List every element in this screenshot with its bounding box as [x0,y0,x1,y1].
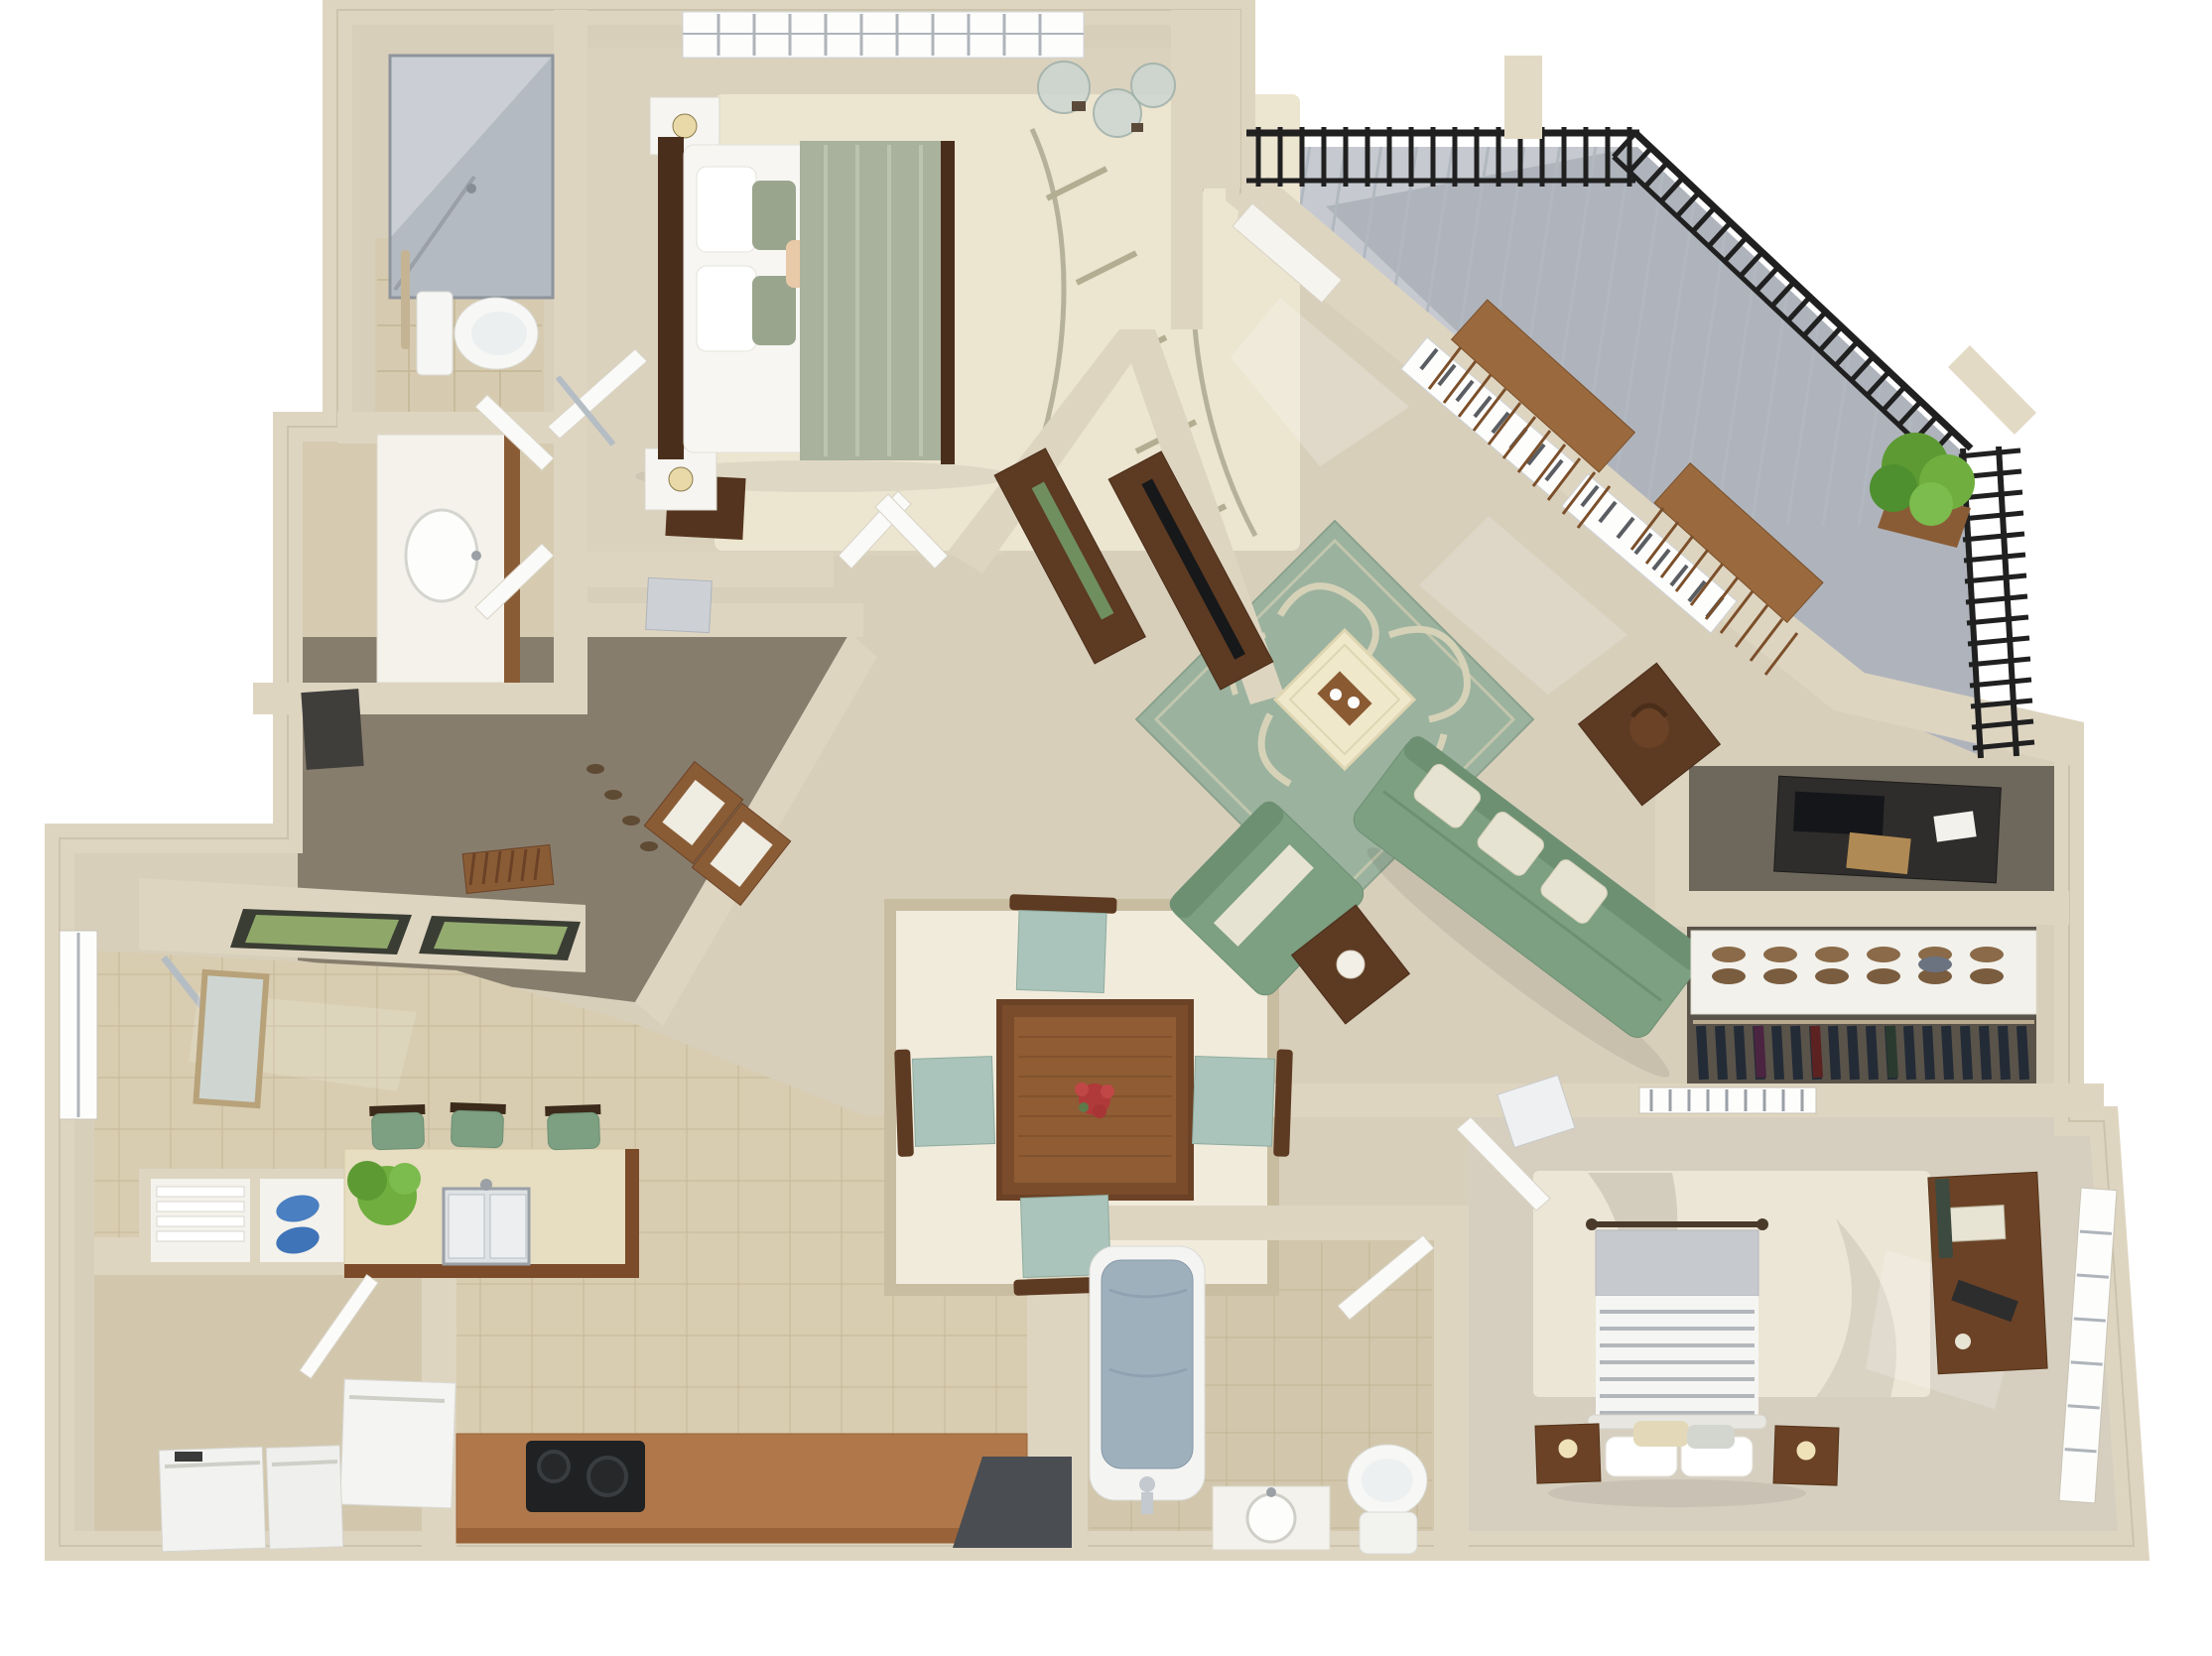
wall-balcony-pillar [1171,10,1240,189]
bed2-pillow-gray [1687,1425,1735,1449]
desk-laptop [1948,1206,2006,1242]
wall-office-closet-divider [1687,891,2069,925]
closet2-clothes-accent [1815,1026,1818,1078]
bed2-pillow-tan [1633,1421,1689,1447]
office-monitor [1793,792,1885,836]
closet1-dark-case [301,689,363,770]
bar-stool [369,1104,427,1150]
washer-control [175,1452,202,1462]
wall-bath2-east [1434,1240,1469,1550]
toilet2-tank [1360,1512,1417,1554]
island-plant [389,1163,421,1195]
vanity-sink [406,510,477,601]
closet1-mirror-dresser [646,577,713,632]
island-edge-east [625,1149,639,1278]
centerpiece-petal [1101,1084,1114,1098]
towel-bar [401,250,410,349]
cooktop-burner [539,1452,569,1481]
bed1-headboard [658,137,684,459]
railing-corner-pillar [1948,345,2036,435]
glass-decor [1131,64,1175,107]
dining-chair-east [1192,1047,1293,1157]
cooktop-burner [588,1458,626,1495]
island-sink-basin [490,1195,526,1258]
bed1-duvet [800,141,947,460]
closet2-clothes-accent [1890,1026,1893,1078]
vanity-faucet [471,551,481,561]
tray-cup [1348,697,1360,708]
floor-plan-svg [0,0,2212,1656]
bed2-finial [1757,1218,1768,1230]
floor-plan-page [0,0,2212,1656]
bar-stool [449,1102,506,1148]
island-sink-basin [449,1195,484,1258]
centerpiece-petal [1093,1104,1106,1118]
bar-stool [545,1104,602,1150]
dining-chair-west [894,1047,995,1157]
entry-skylight-glass [245,915,399,949]
bed1-pillow [697,266,756,351]
island-edge-south [344,1264,637,1278]
closet2-shoe-gray [1918,956,1952,972]
bathtub-spout [1141,1492,1153,1514]
closet1-bench [462,845,554,894]
bed2-lamp [1796,1441,1816,1461]
nightstand2-lamp [669,467,693,491]
glass-decor-accent [1131,123,1143,132]
island-plant [347,1161,387,1201]
bathtub-faucet [1139,1476,1155,1492]
bed2-head-panel [1596,1230,1758,1296]
entry-mirror [196,972,267,1105]
bed1-pillow [697,167,756,252]
office-papers [1933,811,1976,841]
bed2-lamp [1558,1439,1578,1459]
island-faucet [480,1179,492,1191]
toilet1-tank [417,292,453,375]
vanity-trim [504,435,520,683]
closet2-clothes-accent [1758,1026,1761,1078]
toilet1-seat [471,312,527,355]
bath2-faucet [1266,1487,1276,1497]
tray-cup [1330,689,1342,701]
railing-post [1504,56,1542,139]
shower-drain [466,184,476,193]
dining-chair-north [1006,894,1116,993]
bed2-stripes [1600,1312,1755,1413]
endtable-sw-bowl [1337,951,1365,978]
centerpiece-petal [1075,1083,1089,1096]
centerpiece-leaf [1079,1102,1089,1112]
desk-candle [1955,1334,1971,1349]
bed1-pillow-sage [752,181,796,250]
nightstand1-lamp [673,114,697,138]
office-box [1846,832,1910,874]
kitchen-counter-edge [456,1528,1027,1543]
toilet2-seat [1362,1459,1413,1502]
bed2-finial [1586,1218,1598,1230]
bed1-foot-rail [941,141,955,464]
bed2-shadow [1548,1479,1806,1507]
bath2-sink [1247,1494,1295,1542]
wall-closet1-top [587,603,863,637]
bed2-body [1596,1296,1758,1417]
glass-decor-accent [1072,101,1086,111]
balcony-plant [1909,482,1953,526]
